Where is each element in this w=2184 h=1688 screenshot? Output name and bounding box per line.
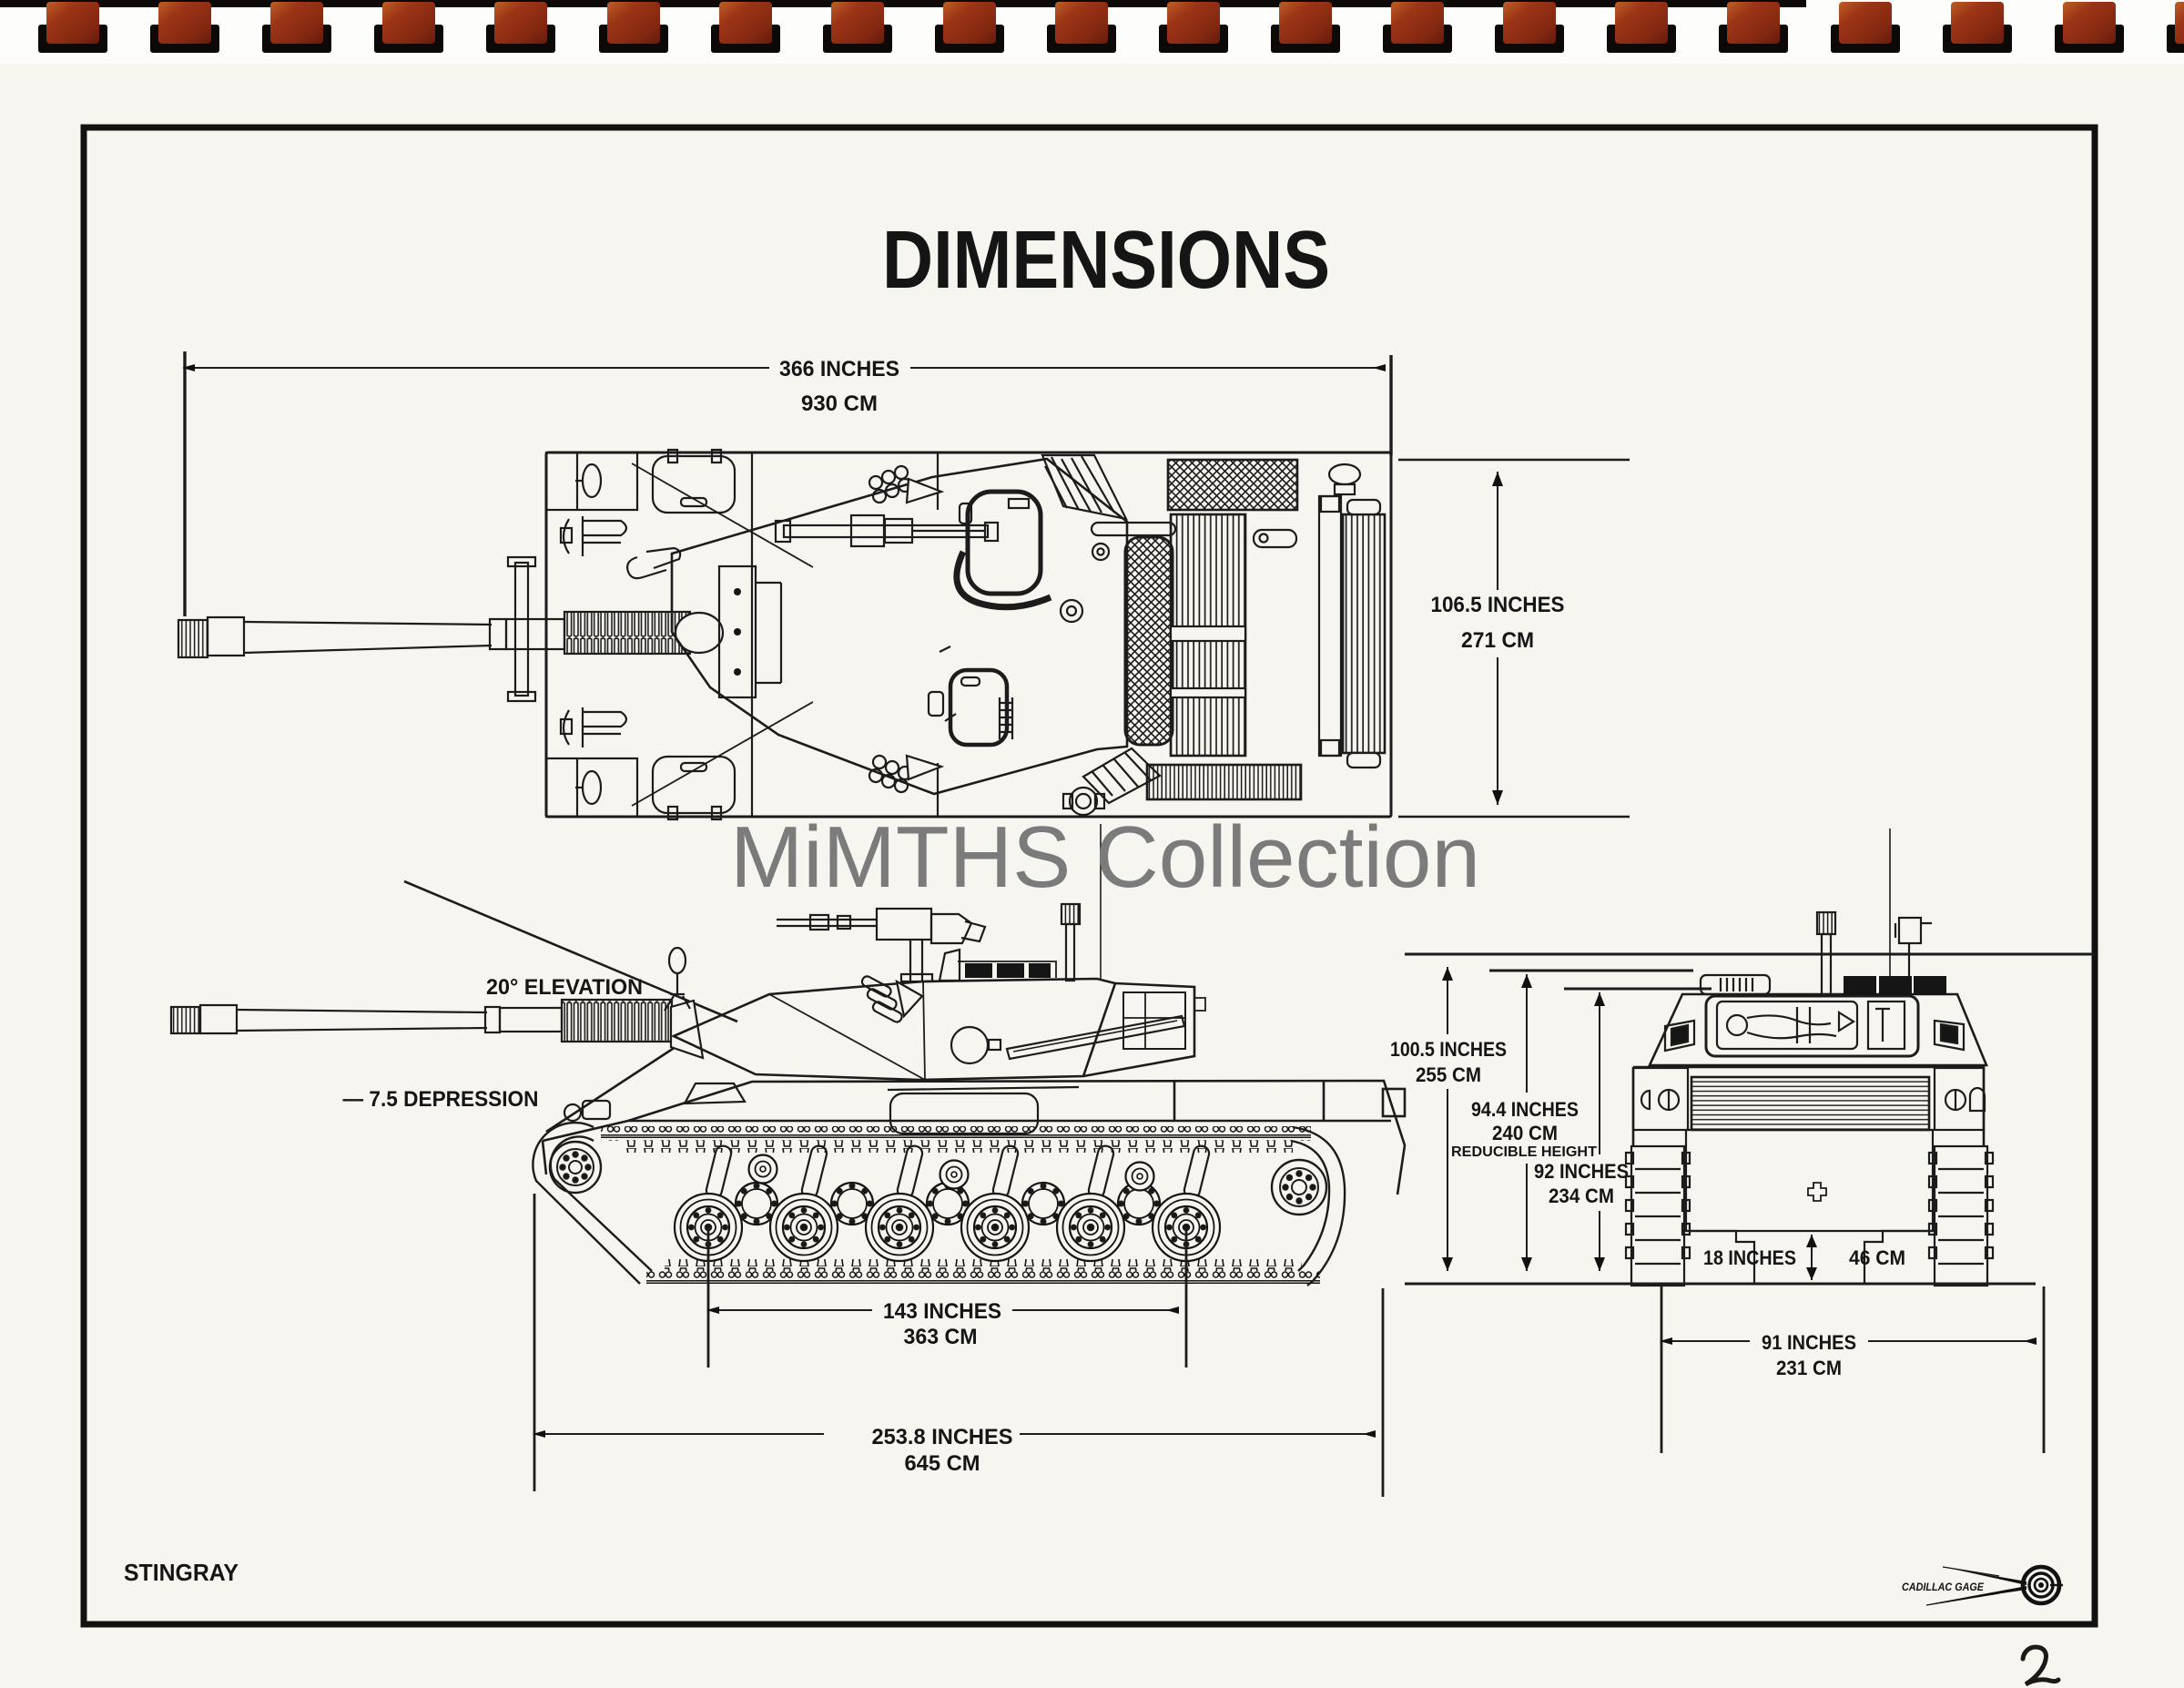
- svg-text:363 CM: 363 CM: [904, 1325, 978, 1349]
- svg-text:20° ELEVATION: 20° ELEVATION: [486, 975, 643, 1000]
- svg-text:253.8 INCHES: 253.8 INCHES: [872, 1425, 1013, 1449]
- svg-text:92 INCHES: 92 INCHES: [1534, 1160, 1629, 1183]
- svg-text:18 INCHES: 18 INCHES: [1703, 1246, 1796, 1269]
- svg-text:MiMTHS Collection: MiMTHS Collection: [730, 808, 1480, 906]
- svg-text:106.5 INCHES: 106.5 INCHES: [1431, 593, 1565, 617]
- svg-text:CADILLAC GAGE: CADILLAC GAGE: [1902, 1581, 1985, 1593]
- svg-text:231 CM: 231 CM: [1776, 1357, 1842, 1379]
- svg-text:143 INCHES: 143 INCHES: [883, 1299, 1001, 1324]
- svg-text:930 CM: 930 CM: [801, 391, 878, 416]
- svg-text:100.5 INCHES: 100.5 INCHES: [1390, 1038, 1507, 1061]
- svg-text:91 INCHES: 91 INCHES: [1762, 1331, 1856, 1354]
- svg-text:366 INCHES: 366 INCHES: [779, 357, 899, 381]
- svg-text:STINGRAY: STINGRAY: [124, 1559, 239, 1586]
- svg-text:DIMENSIONS: DIMENSIONS: [882, 215, 1330, 306]
- svg-text:240 CM: 240 CM: [1492, 1122, 1558, 1144]
- svg-text:271 CM: 271 CM: [1461, 628, 1534, 653]
- svg-text:46 CM: 46 CM: [1849, 1246, 1905, 1269]
- svg-text:REDUCIBLE HEIGHT: REDUCIBLE HEIGHT: [1451, 1144, 1597, 1160]
- svg-text:234 CM: 234 CM: [1549, 1185, 1614, 1207]
- svg-text:645 CM: 645 CM: [905, 1451, 980, 1476]
- svg-text:94.4 INCHES: 94.4 INCHES: [1471, 1098, 1579, 1121]
- svg-text:255 CM: 255 CM: [1416, 1063, 1481, 1086]
- svg-text:— 7.5 DEPRESSION: — 7.5 DEPRESSION: [343, 1087, 539, 1112]
